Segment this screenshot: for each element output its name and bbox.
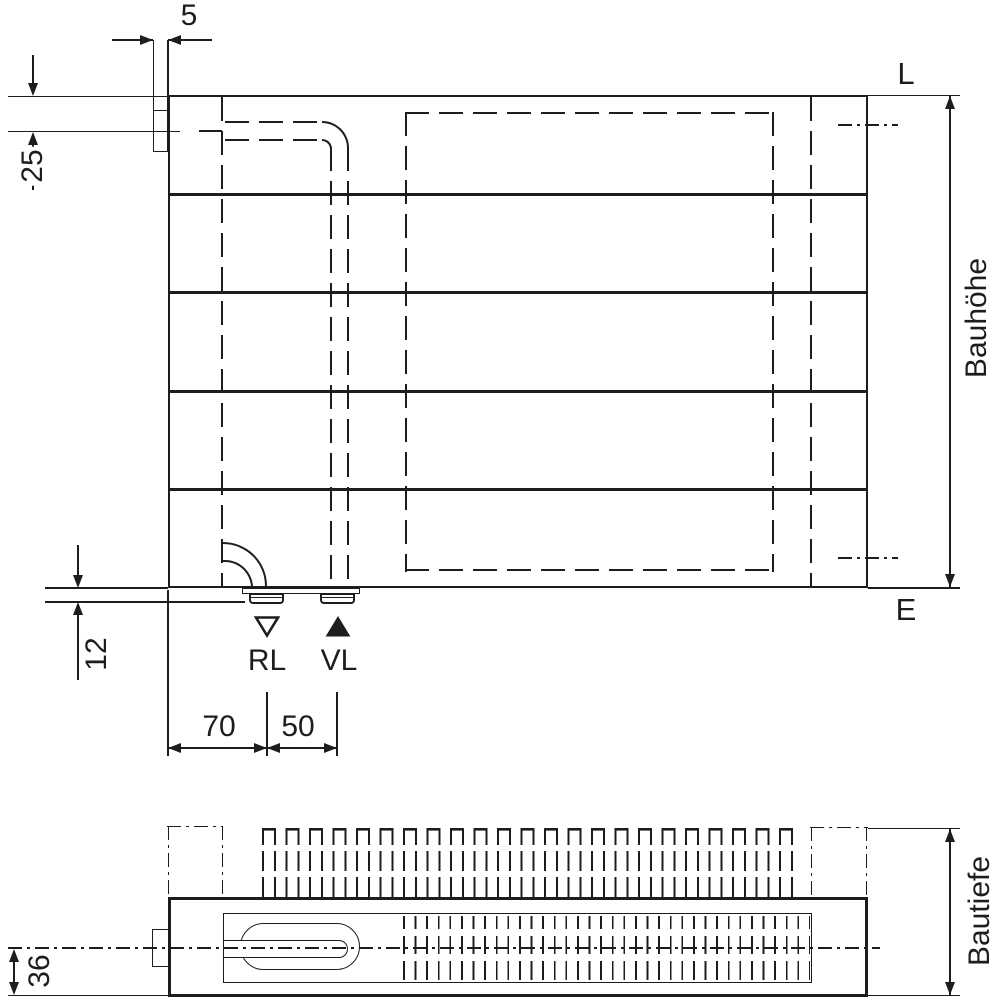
bracket-phantom-right-top xyxy=(810,827,868,829)
dim-arrow xyxy=(945,982,955,995)
pipe-section-outline xyxy=(224,940,348,958)
dim-center-to-bottom-value: 36 xyxy=(23,951,57,990)
dim-arrow xyxy=(945,829,955,842)
bracket-phantom-left-top xyxy=(167,826,223,828)
radiator-technical-drawing: 5 25 12 70 50 xyxy=(0,0,1000,1000)
bracket-phantom-right-edge xyxy=(811,827,813,897)
dim-line xyxy=(13,960,14,984)
ext-line-bottom-left xyxy=(8,995,168,996)
bracket-phantom-left-edge xyxy=(168,826,170,897)
fin-dash-gap xyxy=(403,929,810,936)
convector-fins xyxy=(262,828,802,897)
fin-dash-gap xyxy=(262,845,802,851)
section-center-line xyxy=(8,947,880,949)
fin-dash-gap xyxy=(403,954,810,961)
bracket-phantom-left-edge xyxy=(222,826,224,897)
dim-line-depth xyxy=(949,829,950,995)
bracket-phantom-right-edge xyxy=(866,827,868,897)
depth-label: Bautiefe xyxy=(963,853,997,969)
bottom-view: 36 Bautiefe xyxy=(0,0,1000,1000)
fin-dash-gap xyxy=(262,871,802,877)
